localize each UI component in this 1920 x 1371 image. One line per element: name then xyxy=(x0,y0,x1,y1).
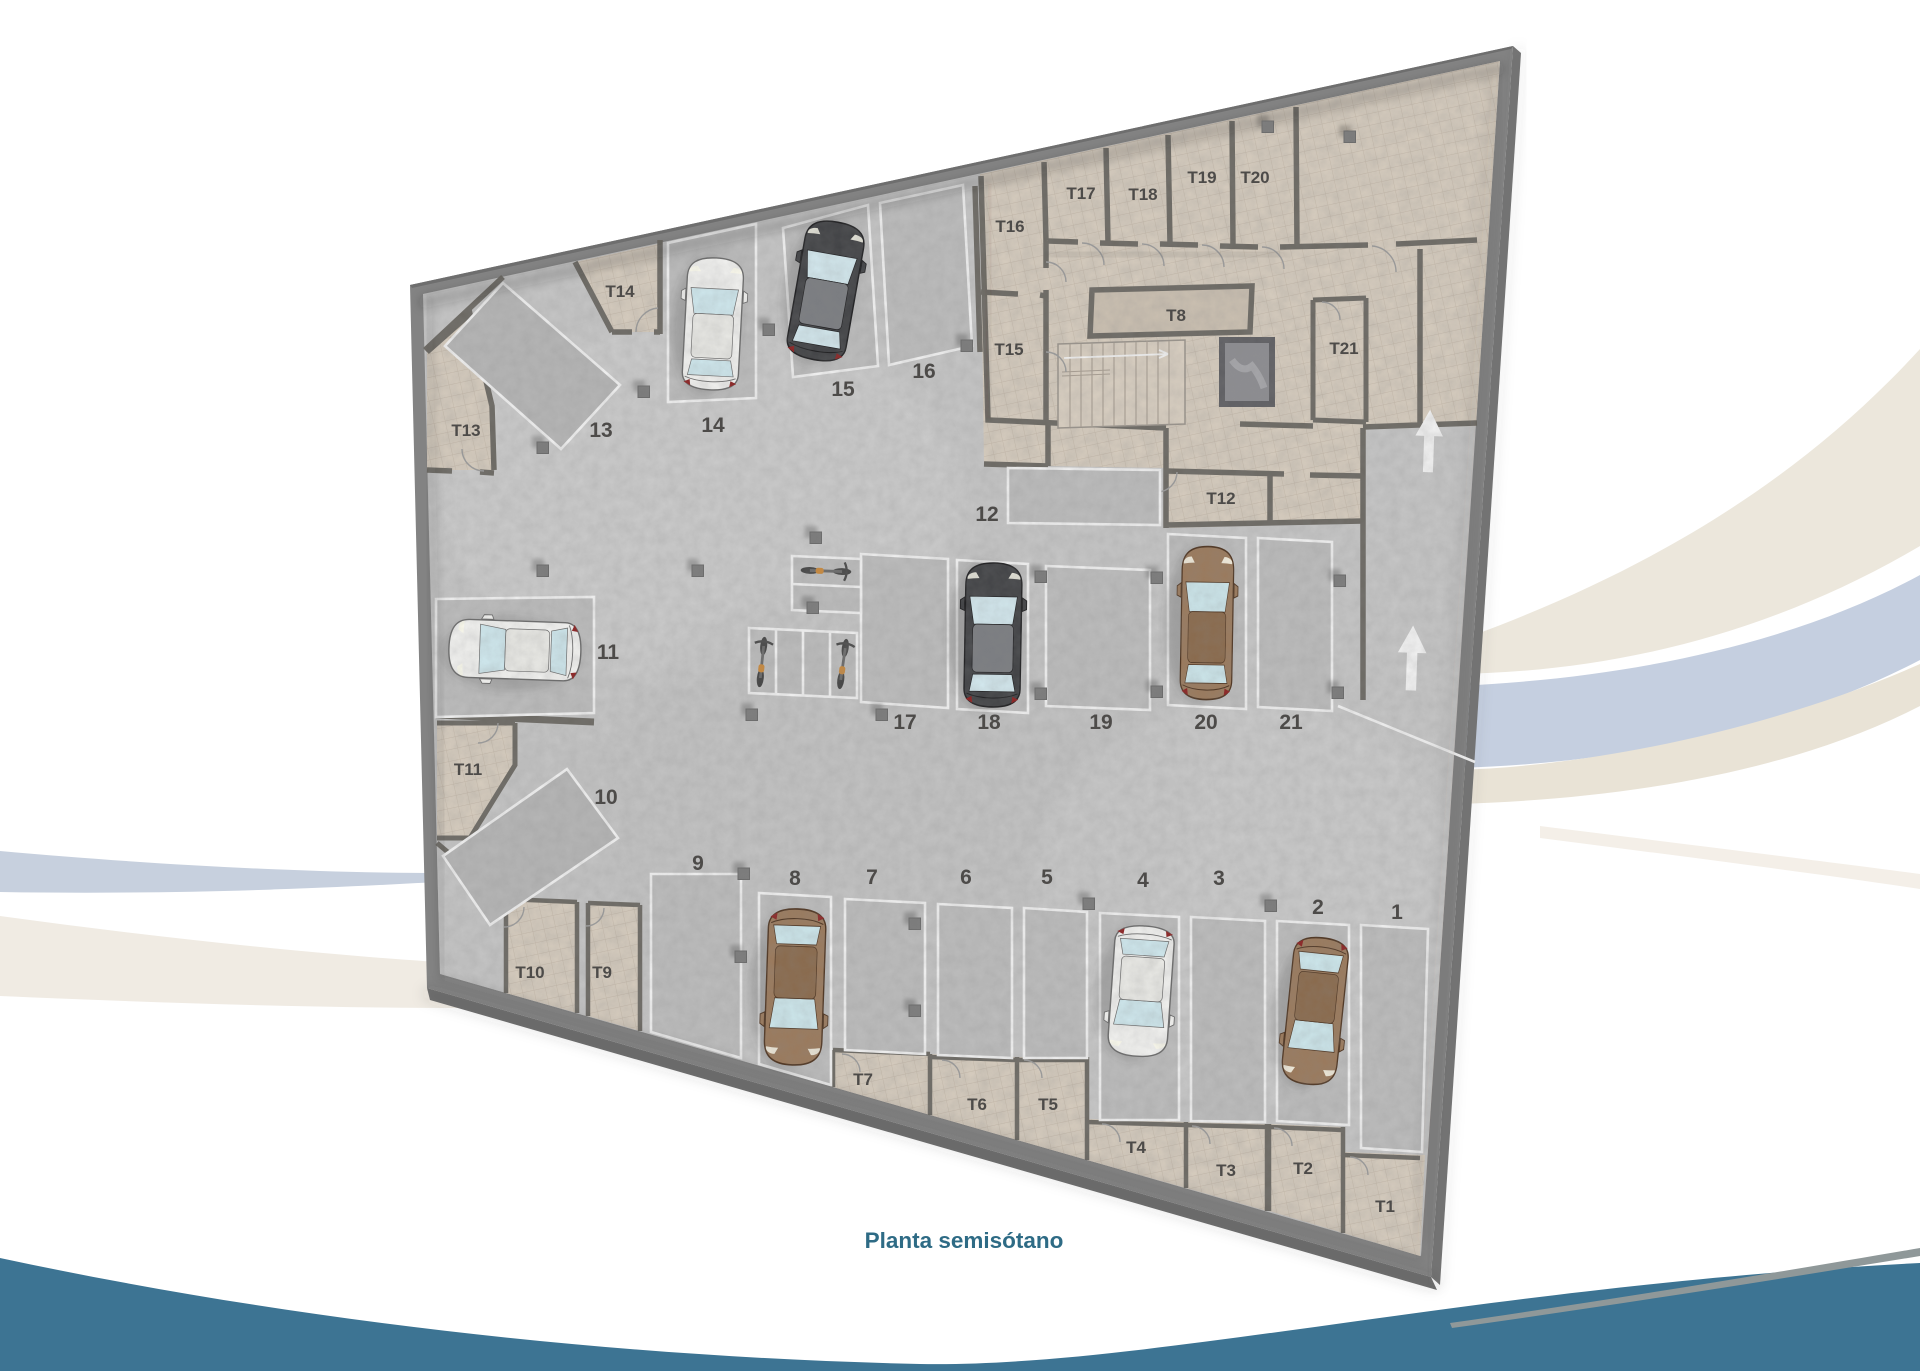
svg-text:T19: T19 xyxy=(1187,168,1216,187)
svg-text:T1: T1 xyxy=(1375,1197,1395,1216)
svg-text:Planta semisótano: Planta semisótano xyxy=(865,1228,1064,1253)
svg-text:16: 16 xyxy=(912,360,935,383)
svg-text:11: 11 xyxy=(597,641,620,664)
svg-text:2: 2 xyxy=(1312,896,1324,919)
svg-text:7: 7 xyxy=(866,866,878,889)
svg-text:T4: T4 xyxy=(1126,1138,1146,1157)
svg-text:18: 18 xyxy=(977,711,1001,734)
svg-text:20: 20 xyxy=(1194,711,1217,734)
svg-text:3: 3 xyxy=(1213,867,1225,890)
svg-text:T13: T13 xyxy=(451,421,480,440)
svg-text:4: 4 xyxy=(1137,869,1149,892)
svg-text:T18: T18 xyxy=(1128,185,1157,204)
svg-text:T15: T15 xyxy=(994,340,1023,359)
svg-text:8: 8 xyxy=(789,867,801,890)
svg-text:1: 1 xyxy=(1391,901,1403,924)
svg-text:15: 15 xyxy=(831,378,855,401)
svg-text:17: 17 xyxy=(893,711,916,734)
svg-text:9: 9 xyxy=(692,852,704,875)
svg-text:T8: T8 xyxy=(1166,306,1186,325)
svg-text:T3: T3 xyxy=(1216,1161,1236,1180)
svg-text:21: 21 xyxy=(1279,711,1303,734)
svg-text:T20: T20 xyxy=(1240,168,1269,187)
svg-text:T10: T10 xyxy=(515,963,544,982)
svg-text:T16: T16 xyxy=(995,217,1024,236)
svg-text:5: 5 xyxy=(1041,866,1053,889)
svg-text:19: 19 xyxy=(1089,711,1112,734)
svg-text:T12: T12 xyxy=(1206,489,1235,508)
svg-text:T5: T5 xyxy=(1038,1095,1058,1114)
svg-text:T6: T6 xyxy=(967,1095,987,1114)
svg-text:14: 14 xyxy=(701,414,725,437)
svg-text:13: 13 xyxy=(589,419,612,442)
svg-text:T2: T2 xyxy=(1293,1159,1313,1178)
svg-text:12: 12 xyxy=(975,503,998,526)
svg-text:T7: T7 xyxy=(853,1070,873,1089)
svg-text:T14: T14 xyxy=(605,282,635,301)
svg-text:T11: T11 xyxy=(454,760,482,779)
svg-text:T9: T9 xyxy=(592,963,612,982)
svg-text:T21: T21 xyxy=(1329,339,1358,358)
svg-text:6: 6 xyxy=(960,866,972,889)
svg-text:T17: T17 xyxy=(1066,184,1095,203)
svg-text:10: 10 xyxy=(594,786,617,809)
